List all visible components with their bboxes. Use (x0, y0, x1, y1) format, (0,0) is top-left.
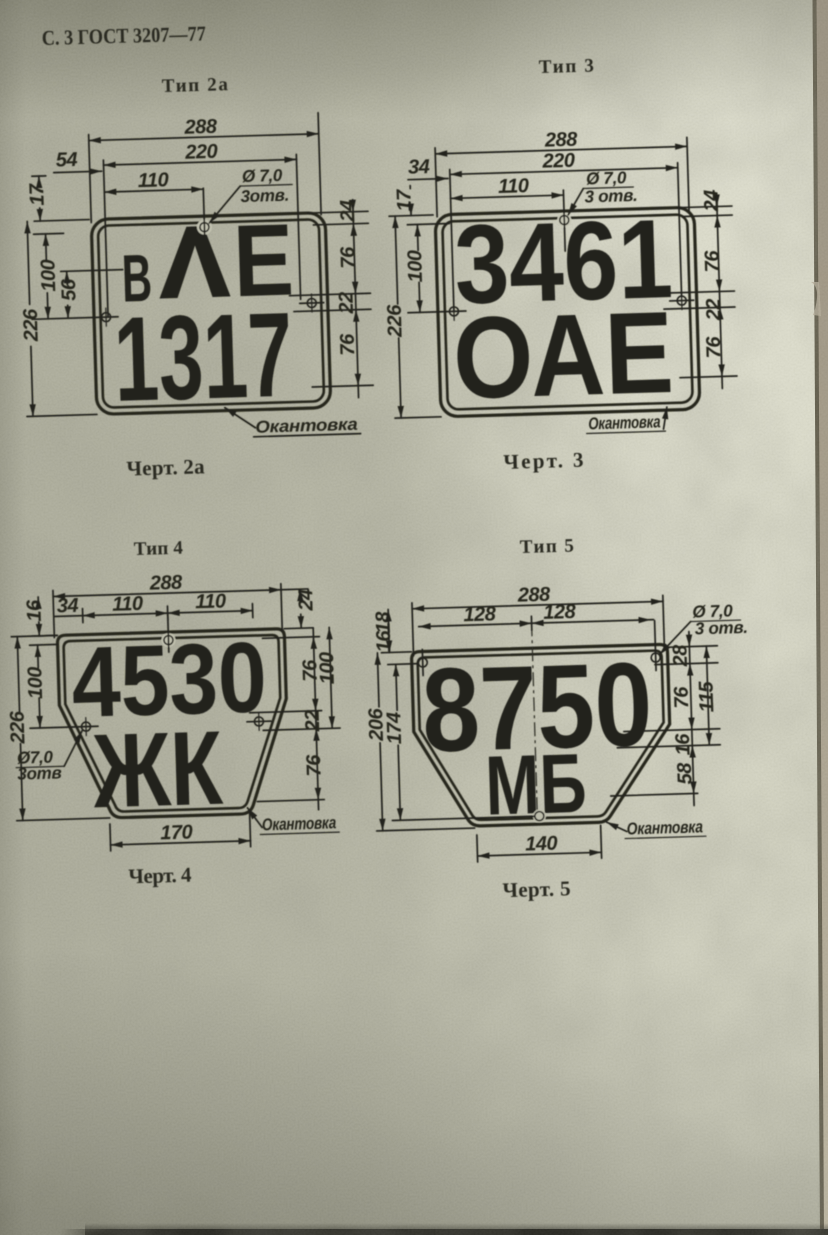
svg-text:Окантовка: Окантовка (262, 813, 337, 834)
svg-text:288: 288 (149, 572, 184, 595)
svg-text:220: 220 (184, 141, 218, 164)
svg-text:100: 100 (24, 666, 47, 699)
svg-text:226: 226 (384, 303, 407, 338)
svg-text:54: 54 (55, 149, 77, 172)
svg-text:24: 24 (700, 189, 723, 212)
svg-text:Окантовка: Окантовка (588, 412, 661, 433)
svg-text:16: 16 (672, 732, 695, 755)
svg-text:76: 76 (337, 333, 360, 356)
svg-text:58: 58 (674, 761, 697, 784)
svg-text:Ø 7,0: Ø 7,0 (586, 168, 627, 188)
svg-text:110: 110 (138, 169, 169, 192)
svg-text:24: 24 (337, 200, 360, 223)
svg-text:100: 100 (404, 250, 427, 283)
svg-text:Тип 2а: Тип 2а (162, 74, 229, 97)
svg-text:1317: 1317 (112, 288, 294, 427)
svg-text:100: 100 (316, 652, 339, 685)
svg-text:110: 110 (498, 175, 529, 198)
svg-text:18: 18 (372, 610, 395, 633)
svg-text:100: 100 (37, 259, 60, 292)
svg-text:16: 16 (23, 599, 46, 622)
svg-text:76: 76 (671, 686, 694, 709)
svg-text:288: 288 (544, 129, 579, 152)
svg-text:34: 34 (56, 595, 78, 618)
svg-text:Ø 7,0: Ø 7,0 (242, 166, 283, 186)
svg-text:226: 226 (7, 710, 30, 745)
svg-text:Черт. 4: Черт. 4 (128, 863, 192, 889)
svg-text:115: 115 (695, 680, 718, 712)
svg-text:288: 288 (183, 116, 218, 139)
svg-text:220: 220 (541, 150, 575, 173)
svg-text:140: 140 (525, 833, 558, 856)
svg-text:76: 76 (703, 335, 726, 358)
svg-text:34: 34 (408, 156, 430, 179)
svg-text:Тип 4: Тип 4 (134, 538, 184, 560)
svg-text:22: 22 (302, 710, 325, 733)
svg-text:ЖК: ЖК (91, 710, 225, 831)
svg-text:Тип 5: Тип 5 (520, 535, 575, 557)
svg-text:С. 3 ГОСТ 3207—77: С. 3 ГОСТ 3207—77 (41, 21, 206, 50)
svg-text:110: 110 (195, 590, 226, 613)
svg-text:76: 76 (701, 249, 724, 272)
svg-text:170: 170 (160, 821, 193, 844)
svg-text:128: 128 (543, 601, 577, 624)
svg-text:ОАЕ: ОАЕ (451, 287, 675, 423)
svg-text:22: 22 (703, 298, 726, 321)
svg-text:Тип 3: Тип 3 (539, 55, 595, 78)
svg-text:3отв.: 3отв. (240, 186, 289, 206)
svg-text:110: 110 (112, 593, 143, 616)
svg-text:206: 206 (365, 707, 388, 742)
svg-text:Черт. 2а: Черт. 2а (126, 454, 205, 480)
svg-text:Окантовка: Окантовка (626, 817, 703, 838)
svg-text:3 отв.: 3 отв. (584, 186, 637, 207)
svg-text:Черт. 5: Черт. 5 (502, 876, 571, 902)
svg-text:76: 76 (303, 754, 326, 777)
svg-text:22: 22 (335, 292, 358, 315)
svg-text:76: 76 (337, 246, 360, 269)
svg-text:128: 128 (463, 603, 497, 626)
svg-text:28: 28 (669, 644, 692, 668)
svg-text:226: 226 (20, 308, 43, 343)
